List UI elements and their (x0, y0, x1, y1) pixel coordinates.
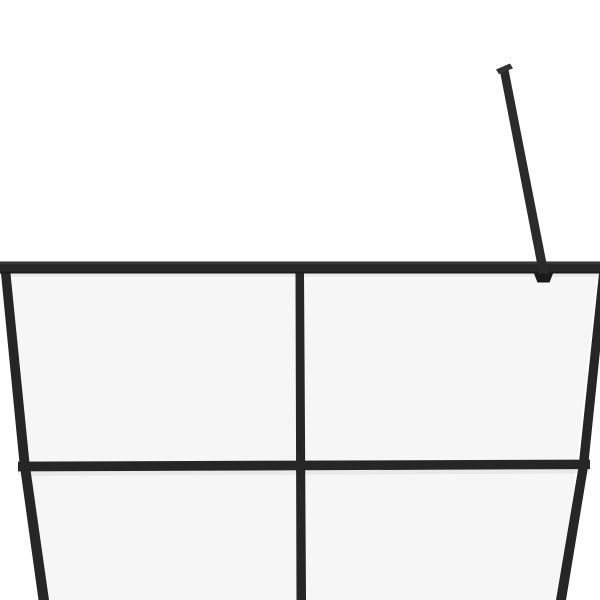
product-photo-shower-screen (0, 0, 600, 600)
shower-screen-illustration (0, 0, 600, 600)
top-rail-bottom-edge (0, 272, 600, 274)
top-rail-highlight (0, 262, 600, 264)
